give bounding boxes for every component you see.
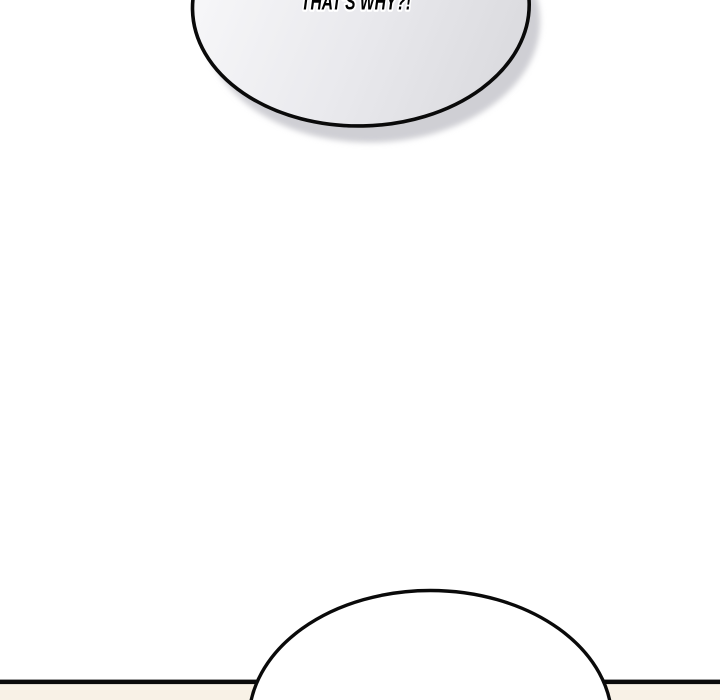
svg-text:THAT'S WHY?!: THAT'S WHY?! [301, 0, 412, 15]
